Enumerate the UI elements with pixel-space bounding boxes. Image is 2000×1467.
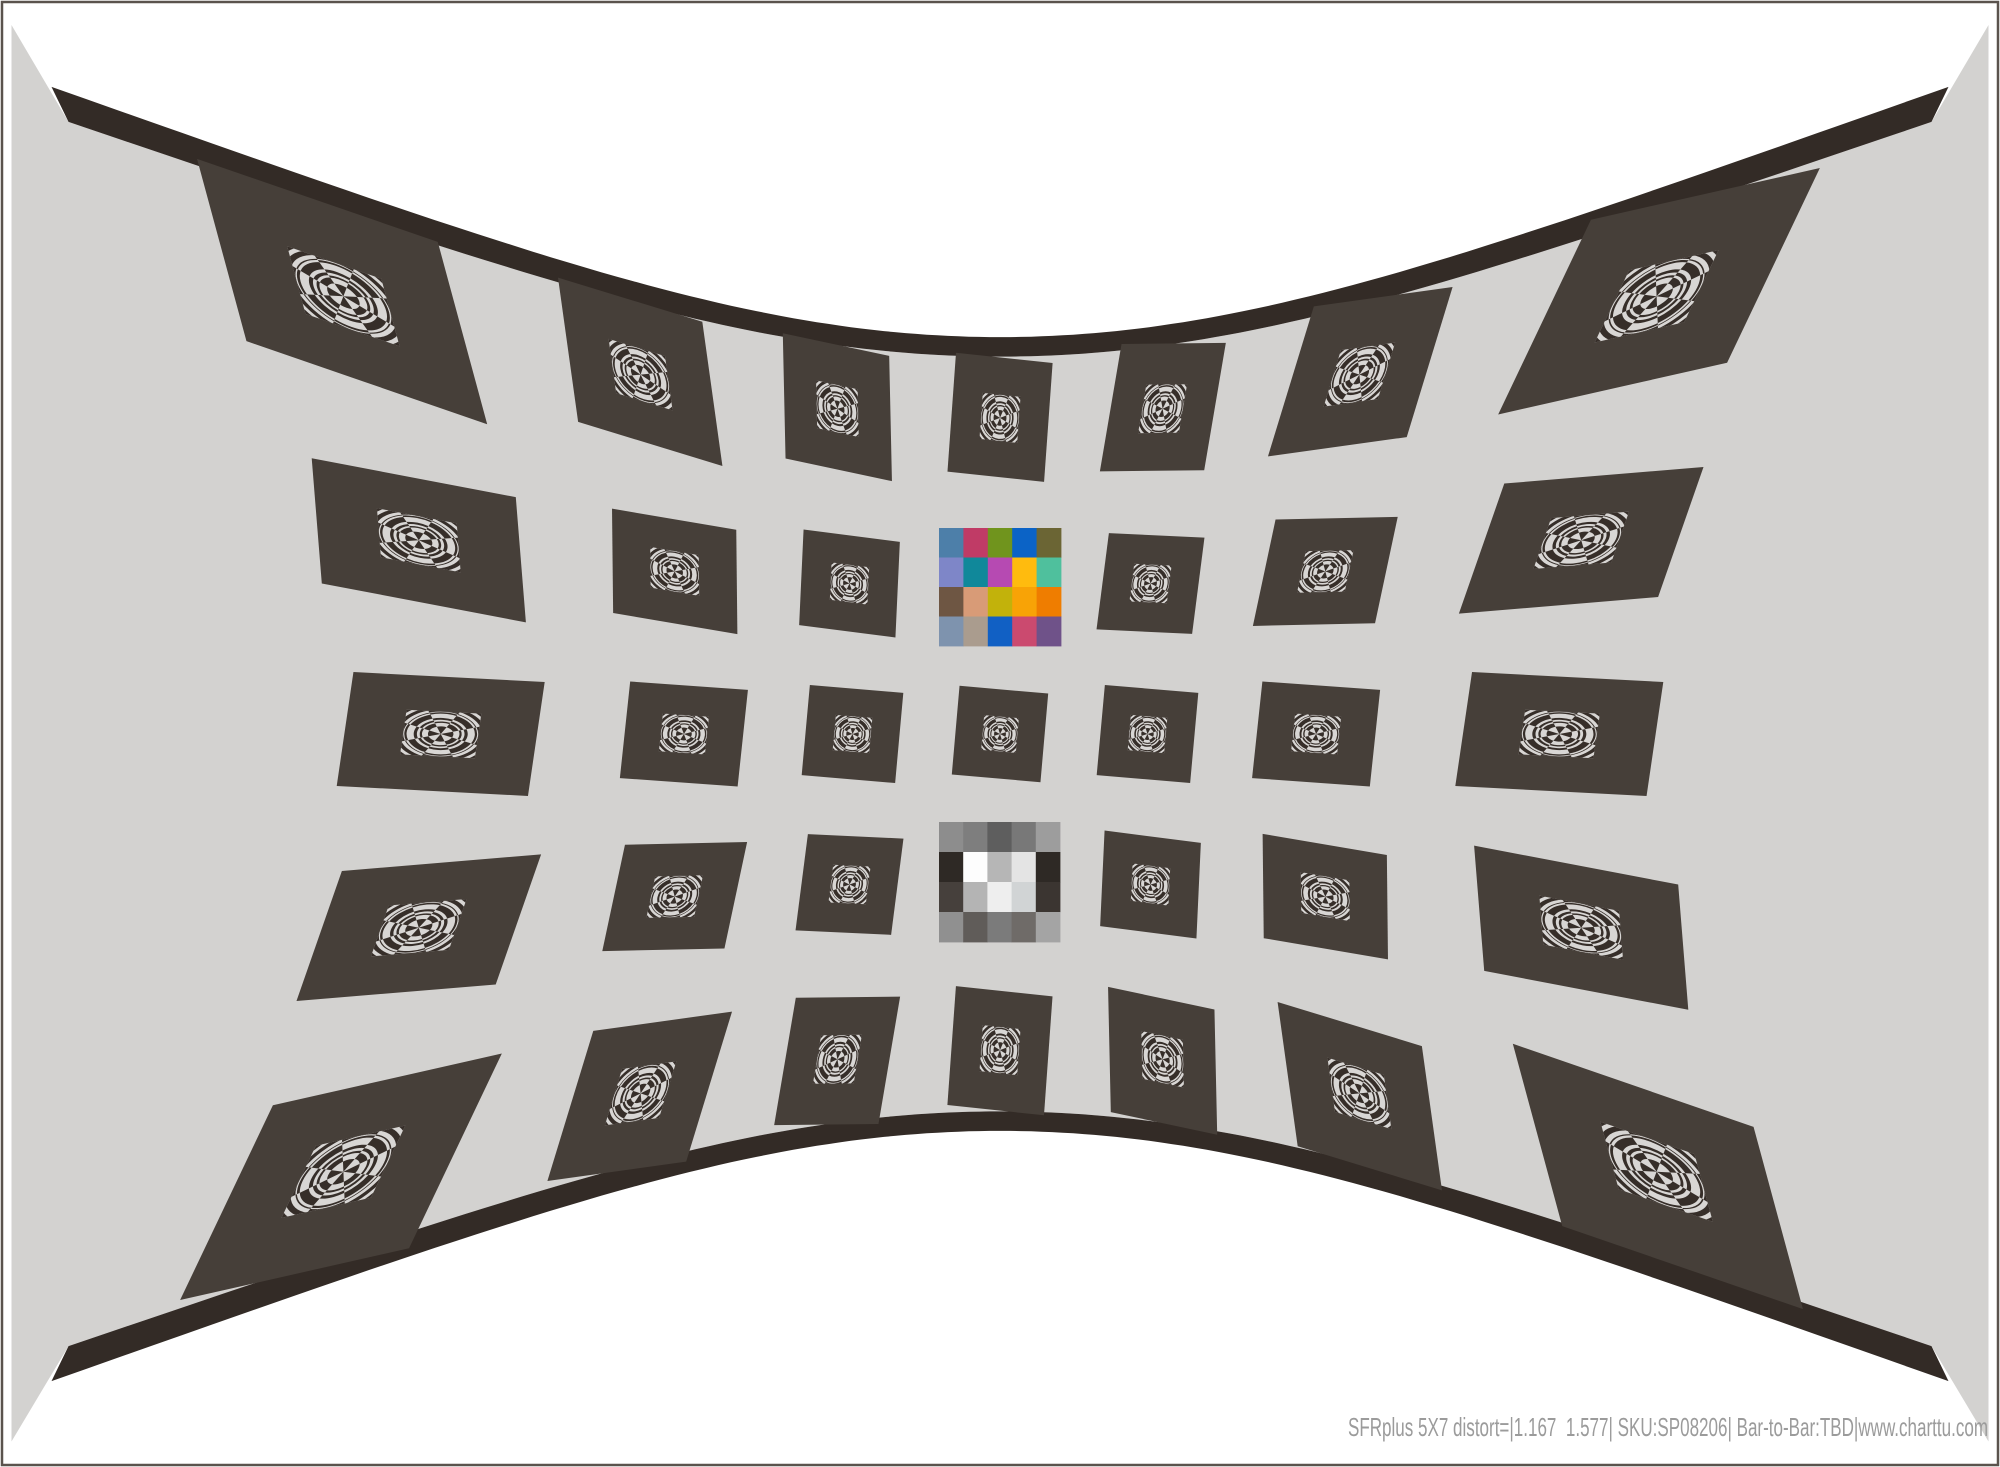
svg-text:SFRplus 5X7 distort=|1.167 1.: SFRplus 5X7 distort=|1.167 1.577| SKU:SP… (1348, 1412, 1988, 1442)
